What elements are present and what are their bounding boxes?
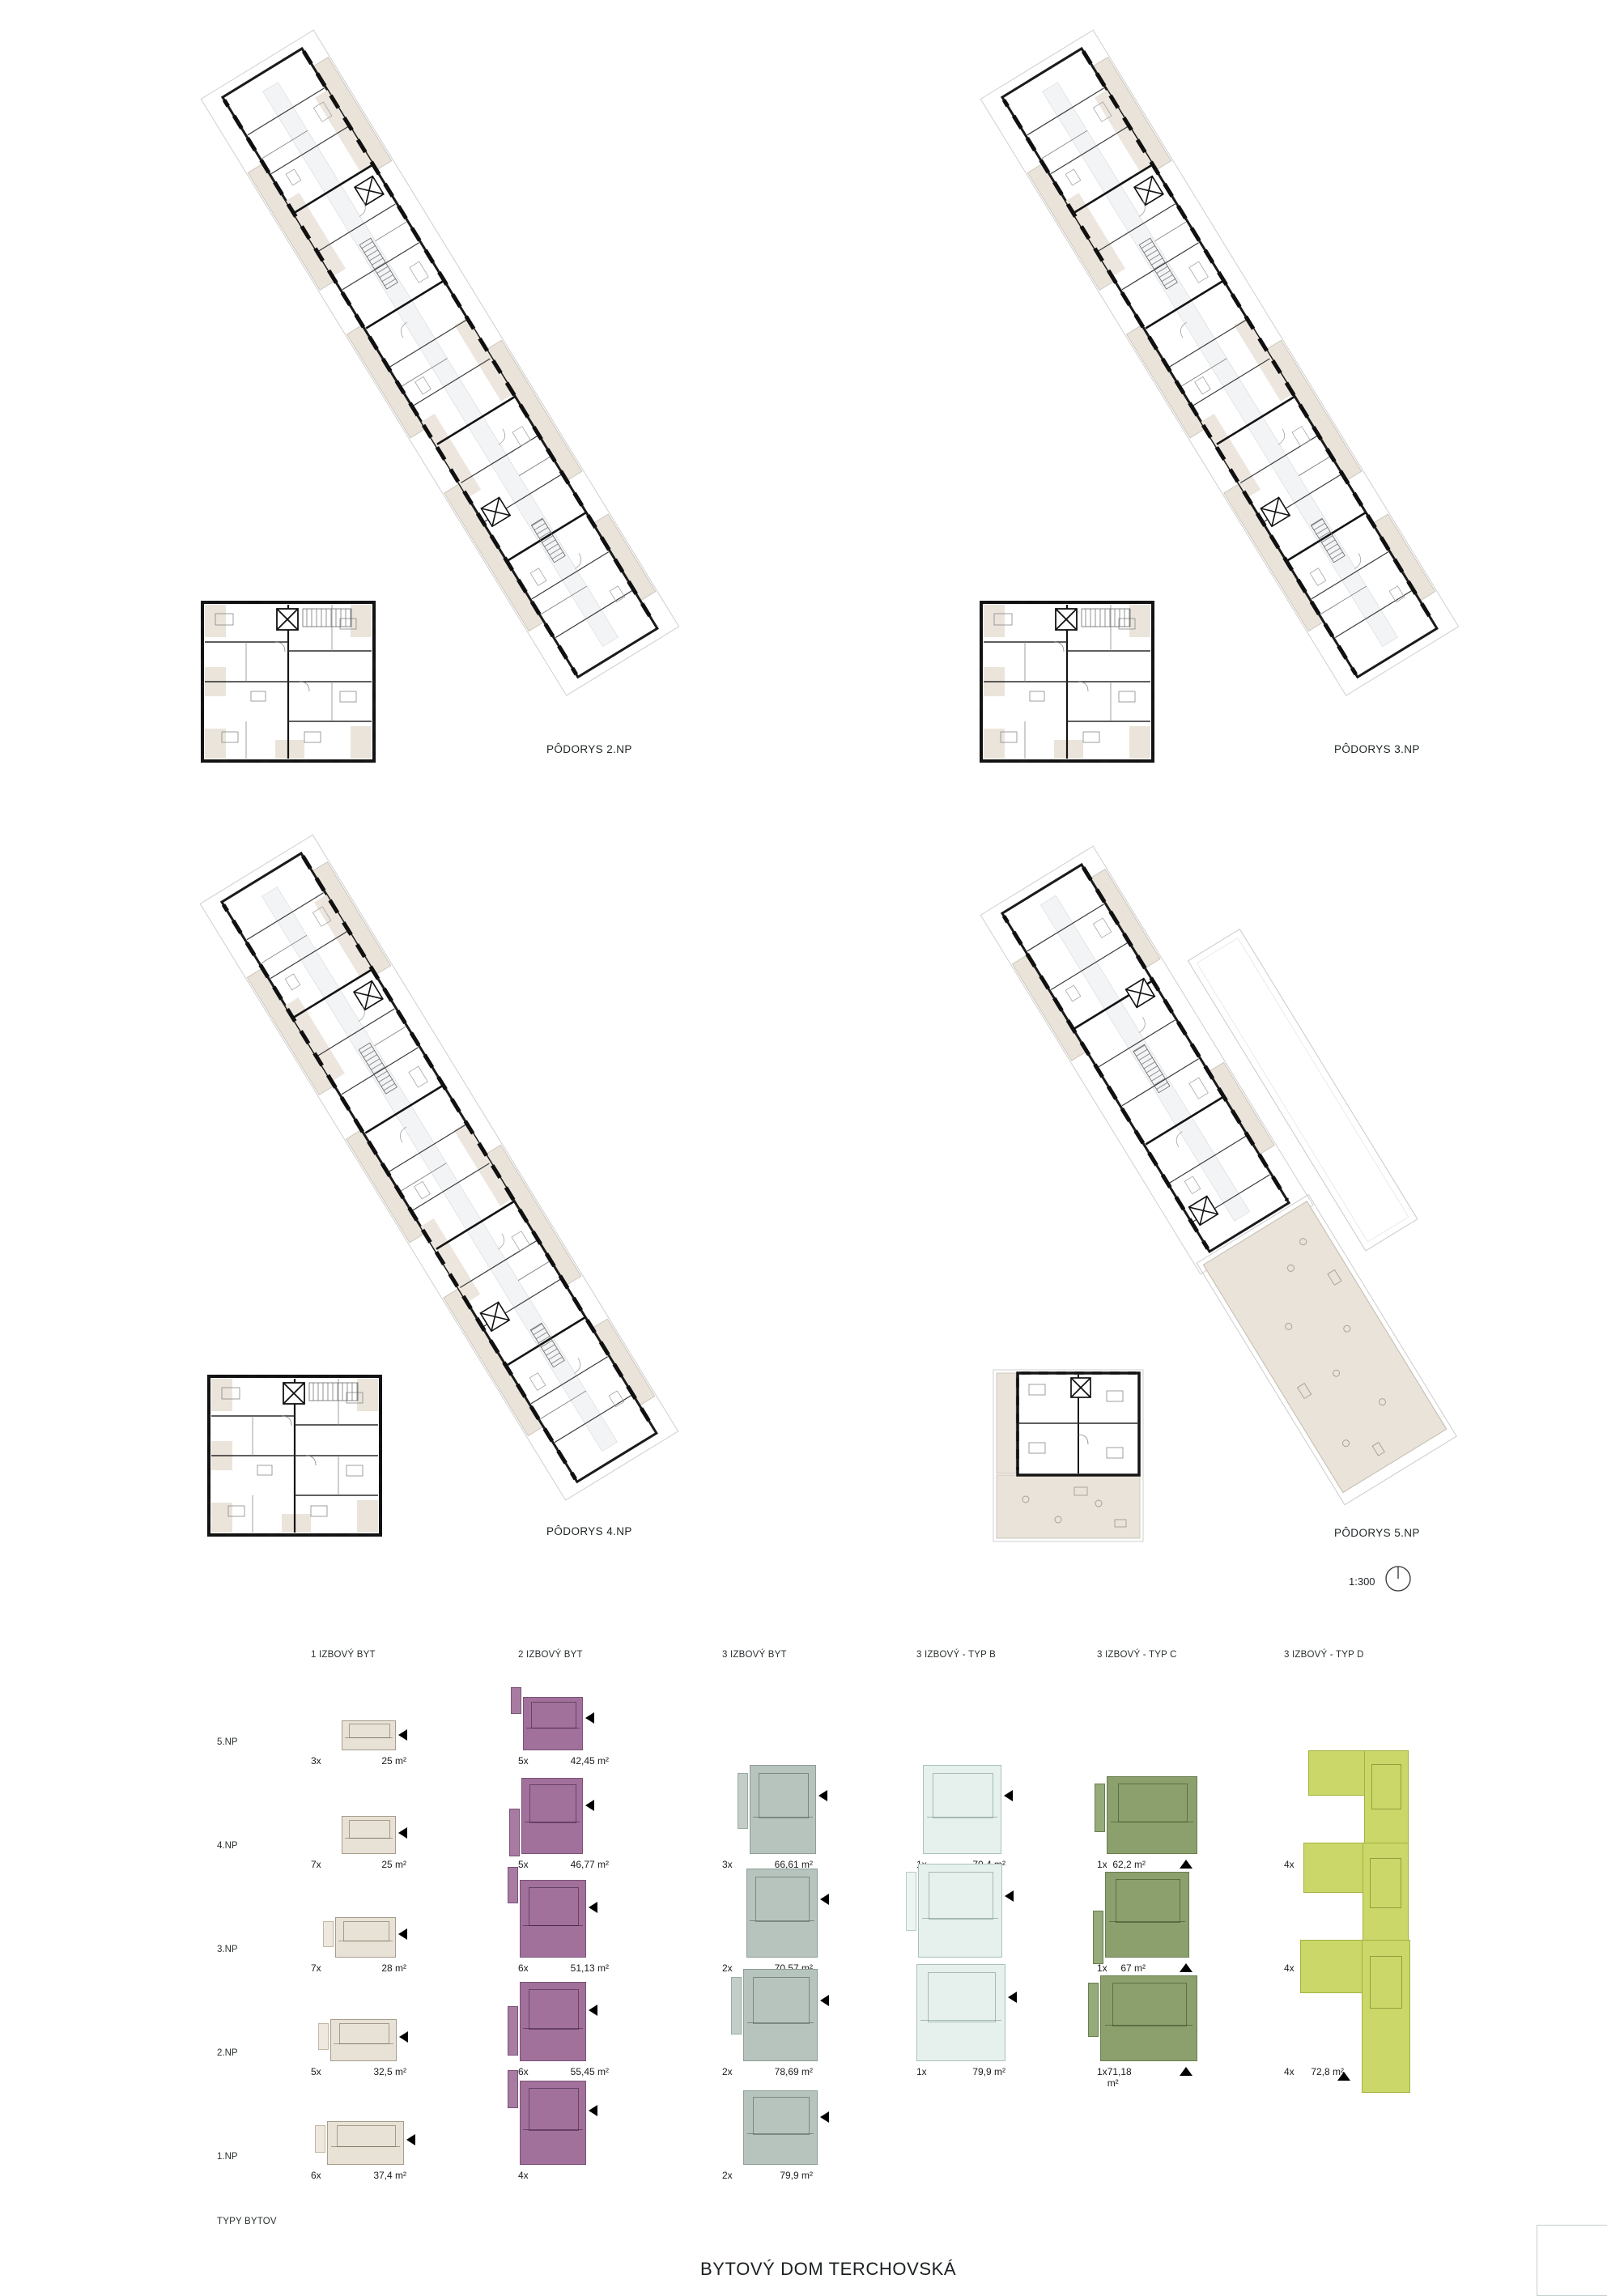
plan-label-4np: PÔDORYS 4.NP	[546, 1525, 632, 1537]
legend-cell-2np-2izb: 6x55,45 m²	[518, 2066, 609, 2079]
legend-cell-1np-1izb: 6x37,4 m²	[311, 2170, 406, 2183]
unit-area: 51,13 m²	[571, 1962, 609, 1974]
north-icon	[1384, 1565, 1412, 1592]
unit-count: 4x	[1284, 1859, 1295, 1870]
unit-count: 2x	[722, 1962, 733, 1974]
legend-title: TYPY BYTOV	[217, 2217, 277, 2226]
unit-area: 79,9 m²	[972, 2066, 1005, 2077]
legend-cell-5np-1izb: 3x25 m²	[311, 1755, 406, 1768]
legend-cell-2np-typb: 1x79,9 m²	[916, 2066, 1005, 2079]
unit-thumbnail-strip	[906, 1872, 916, 1931]
arrow-up-icon	[1180, 1860, 1192, 1869]
arrow-up-icon	[1180, 1963, 1192, 1972]
unit-count: 4x	[518, 2170, 529, 2181]
unit-thumbnail-strip	[1095, 1784, 1105, 1832]
legend-cell-4np-typc: 1x62,2 m²	[1097, 1859, 1146, 1872]
plan-label-5np: PÔDORYS 5.NP	[1334, 1527, 1420, 1539]
unit-count: 7x	[311, 1962, 321, 1974]
legend-cell-4np-2izb: 5x46,77 m²	[518, 1859, 609, 1872]
unit-thumbnail-strip	[1093, 1911, 1103, 1964]
unit-thumbnail-wing	[1362, 1940, 1410, 2093]
scale-note: 1:300	[1349, 1575, 1375, 1588]
unit-area: 78,69 m²	[775, 2066, 813, 2077]
unit-thumbnail-strip	[508, 2006, 518, 2056]
unit-thumbnail	[743, 1969, 818, 2061]
arrow-left-icon	[589, 2005, 597, 2016]
unit-area: 67 m²	[1120, 1962, 1146, 1974]
unit-thumbnail	[743, 2090, 818, 2165]
arrow-up-icon	[1180, 2067, 1192, 2076]
column-header-3-typ-c: 3 IZBOVÝ - TYP C	[1097, 1650, 1177, 1660]
unit-area: 72,8 m²	[1311, 2066, 1344, 2077]
unit-area: 55,45 m²	[571, 2066, 609, 2077]
unit-thumbnail	[327, 2121, 404, 2165]
floor-label-4np: 4.NP	[217, 1841, 238, 1851]
arrow-left-icon	[1004, 1790, 1013, 1801]
unit-area: 37,4 m²	[373, 2170, 406, 2181]
unit-count: 1x	[1097, 2066, 1107, 2089]
unit-thumbnail-strip	[731, 1977, 742, 2035]
unit-thumbnail	[520, 2081, 586, 2165]
unit-thumbnail	[750, 1765, 816, 1854]
column-header-2-izbovy: 2 IZBOVÝ BYT	[518, 1650, 583, 1660]
unit-count: 1x	[1097, 1859, 1107, 1870]
unit-thumbnail	[342, 1816, 396, 1854]
plan-2np-tower	[202, 602, 374, 761]
unit-thumbnail	[1105, 1872, 1189, 1958]
legend-cell-3np-typc: 1x67 m²	[1097, 1962, 1146, 1975]
arrow-left-icon	[398, 1827, 407, 1839]
unit-count: 3x	[311, 1755, 321, 1767]
legend-cell-2np-typc: 1x71,18 m²	[1097, 2066, 1146, 2079]
unit-thumbnail	[523, 1697, 583, 1750]
unit-thumbnail	[1100, 1975, 1197, 2061]
drawing-sheet: { "sheet": { "title": "BYTOVÝ DOM TERCHO…	[0, 0, 1607, 2295]
column-header-1-izbovy: 1 IZBOVÝ BYT	[311, 1650, 376, 1660]
arrow-left-icon	[406, 2134, 415, 2145]
floor-label-5np: 5.NP	[217, 1737, 238, 1747]
unit-count: 6x	[518, 1962, 529, 1974]
floor-label-3np: 3.NP	[217, 1945, 238, 1954]
arrow-left-icon	[589, 1902, 597, 1913]
sheet-title: BYTOVÝ DOM TERCHOVSKÁ	[700, 2259, 956, 2280]
arrow-left-icon	[820, 2111, 829, 2123]
unit-thumbnail	[1300, 1940, 1410, 2061]
unit-count: 7x	[311, 1859, 321, 1870]
plan-3np-slab	[980, 30, 1458, 695]
unit-thumbnail-strip	[318, 2023, 329, 2050]
unit-count: 3x	[722, 1859, 733, 1870]
plan-label-2np: PÔDORYS 2.NP	[546, 743, 632, 755]
unit-count: 2x	[722, 2170, 733, 2181]
unit-thumbnail	[918, 1864, 1002, 1958]
legend-cell-3np-1izb: 7x28 m²	[311, 1962, 406, 1975]
legend-cell-3np-2izb: 6x51,13 m²	[518, 1962, 609, 1975]
unit-count: 1x	[1097, 1962, 1107, 1974]
legend-cell-1np-3izb: 2x79,9 m²	[722, 2170, 813, 2183]
legend-cell-1np-2izb: 4x	[518, 2170, 609, 2183]
arrow-left-icon	[818, 1790, 827, 1801]
arrow-left-icon	[585, 1800, 594, 1811]
unit-thumbnail-strip	[508, 2070, 518, 2108]
plan-5np-tower	[993, 1370, 1143, 1541]
unit-count: 4x	[1284, 1962, 1295, 1974]
unit-thumbnail-strip	[323, 1921, 334, 1947]
unit-count: 6x	[311, 2170, 321, 2181]
unit-thumbnail	[916, 1964, 1005, 2061]
arrow-left-icon	[1008, 1992, 1017, 2003]
unit-thumbnail	[335, 1917, 396, 1958]
unit-count: 2x	[722, 2066, 733, 2077]
unit-thumbnail	[1308, 1750, 1409, 1854]
unit-thumbnail-strip	[315, 2125, 325, 2153]
plan-3np-tower	[981, 602, 1153, 761]
unit-count: 5x	[518, 1755, 529, 1767]
unit-area: 32,5 m²	[373, 2066, 406, 2077]
floor-label-2np: 2.NP	[217, 2048, 238, 2058]
title-block-box	[1537, 2225, 1607, 2296]
plan-4np-slab	[200, 835, 678, 1500]
floor-label-1np: 1.NP	[217, 2152, 238, 2162]
arrow-left-icon	[585, 1712, 594, 1724]
unit-thumbnail	[520, 1880, 586, 1958]
unit-area: 71,18 m²	[1107, 2066, 1146, 2089]
unit-thumbnail-strip	[738, 1773, 748, 1829]
arrow-left-icon	[1005, 1890, 1014, 1902]
legend-cell-2np-1izb: 5x32,5 m²	[311, 2066, 406, 2079]
unit-area: 79,9 m²	[780, 2170, 813, 2181]
unit-count: 6x	[518, 2066, 529, 2077]
column-header-3-typ-b: 3 IZBOVÝ - TYP B	[916, 1650, 996, 1660]
arrow-left-icon	[398, 1729, 407, 1741]
column-header-3-typ-d: 3 IZBOVÝ - TYP D	[1284, 1650, 1364, 1660]
unit-area: 25 m²	[381, 1755, 406, 1767]
arrow-left-icon	[820, 1995, 829, 2006]
arrow-left-icon	[398, 1928, 407, 1940]
plan-2np-slab	[201, 30, 678, 695]
unit-area: 42,45 m²	[571, 1755, 609, 1767]
arrow-left-icon	[589, 2105, 597, 2116]
unit-thumbnail	[1107, 1776, 1197, 1854]
unit-count: 5x	[311, 2066, 321, 2077]
unit-thumbnail-strip	[1088, 1983, 1099, 2036]
arrow-left-icon	[399, 2031, 408, 2043]
unit-thumbnail	[330, 2019, 397, 2061]
unit-thumbnail-strip	[508, 1867, 518, 1903]
plan-label-3np: PÔDORYS 3.NP	[1334, 743, 1420, 755]
legend-cell-5np-2izb: 5x42,45 m²	[518, 1755, 609, 1768]
column-header-3-izbovy: 3 IZBOVÝ BYT	[722, 1650, 787, 1660]
unit-count: 1x	[916, 2066, 927, 2077]
arrow-left-icon	[820, 1894, 829, 1905]
unit-area: 28 m²	[381, 1962, 406, 1974]
unit-thumbnail	[521, 1778, 583, 1854]
unit-thumbnail	[342, 1720, 396, 1750]
legend-cell-4np-1izb: 7x25 m²	[311, 1859, 406, 1872]
unit-thumbnail	[923, 1765, 1001, 1854]
unit-area: 46,77 m²	[571, 1859, 609, 1870]
unit-area: 62,2 m²	[1112, 1859, 1146, 1870]
unit-thumbnail-strip	[509, 1809, 520, 1856]
unit-count: 5x	[518, 1859, 529, 1870]
unit-area: 25 m²	[381, 1859, 406, 1870]
unit-thumbnail	[520, 1982, 586, 2061]
unit-thumbnail	[746, 1869, 818, 1958]
unit-count: 4x	[1284, 2066, 1295, 2077]
unit-thumbnail-strip	[511, 1687, 521, 1714]
legend-cell-2np-3izb: 2x78,69 m²	[722, 2066, 813, 2079]
plan-4np-tower	[209, 1376, 380, 1535]
legend-cell-2np-typd: 4x72,8 m²	[1284, 2066, 1344, 2079]
